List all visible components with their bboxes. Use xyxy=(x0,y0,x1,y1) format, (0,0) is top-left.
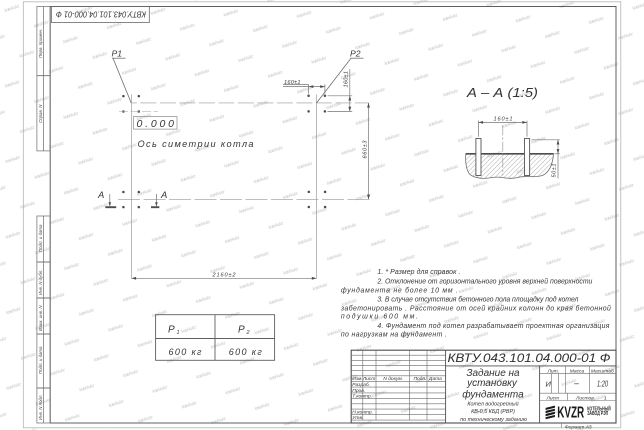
svg-text:2: 2 xyxy=(246,330,250,336)
svg-text:1: 1 xyxy=(604,395,607,401)
svg-text:660±3: 660±3 xyxy=(363,140,369,159)
svg-text:установку: установку xyxy=(466,378,518,389)
svg-text:ЗАВОД РЭП: ЗАВОД РЭП xyxy=(587,411,608,417)
svg-text:Пров.: Пров. xyxy=(352,388,365,394)
svg-text:А – А (1:5): А – А (1:5) xyxy=(466,85,538,100)
svg-text:Утв.: Утв. xyxy=(352,415,363,421)
svg-text:Масштаб: Масштаб xyxy=(591,369,614,375)
svg-text:P1: P1 xyxy=(112,49,123,59)
svg-text:КВТУ.043.101.04.000-01 Ф: КВТУ.043.101.04.000-01 Ф xyxy=(448,351,611,365)
svg-text:2160±2: 2160±2 xyxy=(212,272,237,278)
svg-text:4. Фундамент под котел разраб: 4. Фундамент под котел разрабатывает про… xyxy=(377,322,609,330)
svg-text:Т.контр.: Т.контр. xyxy=(352,393,372,399)
svg-text:Дата: Дата xyxy=(428,376,442,382)
svg-text:P2: P2 xyxy=(350,49,361,59)
svg-text:1. * Размер для справок .: 1. * Размер для справок . xyxy=(377,268,460,276)
svg-text:N докум.: N докум. xyxy=(383,376,403,382)
svg-text:160±1: 160±1 xyxy=(494,116,513,122)
svg-text:Перв. примен.: Перв. примен. xyxy=(38,29,43,58)
svg-text:КВ-0,5 КБД (РВР): КВ-0,5 КБД (РВР) xyxy=(471,409,515,415)
svg-text:Подп. и дата: Подп. и дата xyxy=(38,224,43,252)
svg-text:Ось симетрии котла: Ось симетрии котла xyxy=(138,139,254,149)
svg-text:50±1: 50±1 xyxy=(552,164,558,178)
svg-text:KVZR: KVZR xyxy=(557,404,584,421)
svg-text:фундамента не более 10 мм .: фундамента не более 10 мм . xyxy=(341,286,458,294)
svg-text:160±1: 160±1 xyxy=(343,71,349,88)
svg-text:Справ. N: Справ. N xyxy=(38,104,43,123)
svg-text:Лист: Лист xyxy=(546,395,560,401)
svg-text:фундамента: фундамента xyxy=(462,389,524,401)
svg-text:0.000: 0.000 xyxy=(137,118,175,130)
svg-text:2. Отклонение от горизонтальн: 2. Отклонение от горизонтального уровня … xyxy=(376,278,592,286)
svg-text:по нагрузкам на фундамент .: по нагрузкам на фундамент . xyxy=(341,330,447,338)
svg-text:Котел водогрейный: Котел водогрейный xyxy=(467,400,518,407)
svg-text:по техническому заданию: по техническому заданию xyxy=(460,417,527,423)
svg-text:–: – xyxy=(573,379,579,388)
svg-text:P: P xyxy=(168,325,175,336)
svg-text:1: 1 xyxy=(177,330,180,336)
svg-text:P: P xyxy=(238,325,245,336)
svg-text:Н.контр.: Н.контр. xyxy=(352,409,373,415)
svg-text:забетонировать . Расстояние от: забетонировать . Расстояние от осей край… xyxy=(340,304,611,312)
svg-text:Инв. N подл.: Инв. N подл. xyxy=(38,394,43,420)
svg-text:Изм.Лист: Изм.Лист xyxy=(352,376,375,382)
svg-text:A: A xyxy=(97,189,104,200)
svg-text:A: A xyxy=(160,189,167,200)
svg-text:Инв. N дубл.: Инв. N дубл. xyxy=(38,270,43,295)
svg-text:Лит.: Лит. xyxy=(547,369,559,375)
svg-text:Подп.: Подп. xyxy=(414,376,427,382)
svg-text:1:20: 1:20 xyxy=(597,380,608,389)
svg-text:Масса: Масса xyxy=(570,369,585,375)
svg-text:Листов: Листов xyxy=(575,395,594,401)
svg-text:Взам. инв. N: Взам. инв. N xyxy=(38,305,43,331)
svg-text:Разраб.: Разраб. xyxy=(352,382,370,388)
svg-text:КВТУ.043.101.04.000-01 Ф: КВТУ.043.101.04.000-01 Ф xyxy=(56,10,146,20)
svg-text:И: И xyxy=(545,379,551,388)
svg-text:Формат А3: Формат А3 xyxy=(565,424,592,430)
svg-text:подушки 600 мм.: подушки 600 мм. xyxy=(341,313,418,321)
svg-text:3. В случае отсутствия бетонн: 3. В случае отсутствия бетонного пола пл… xyxy=(377,295,578,303)
svg-text:Подп. и дата: Подп. и дата xyxy=(38,346,43,374)
svg-text:160±1: 160±1 xyxy=(284,80,301,86)
